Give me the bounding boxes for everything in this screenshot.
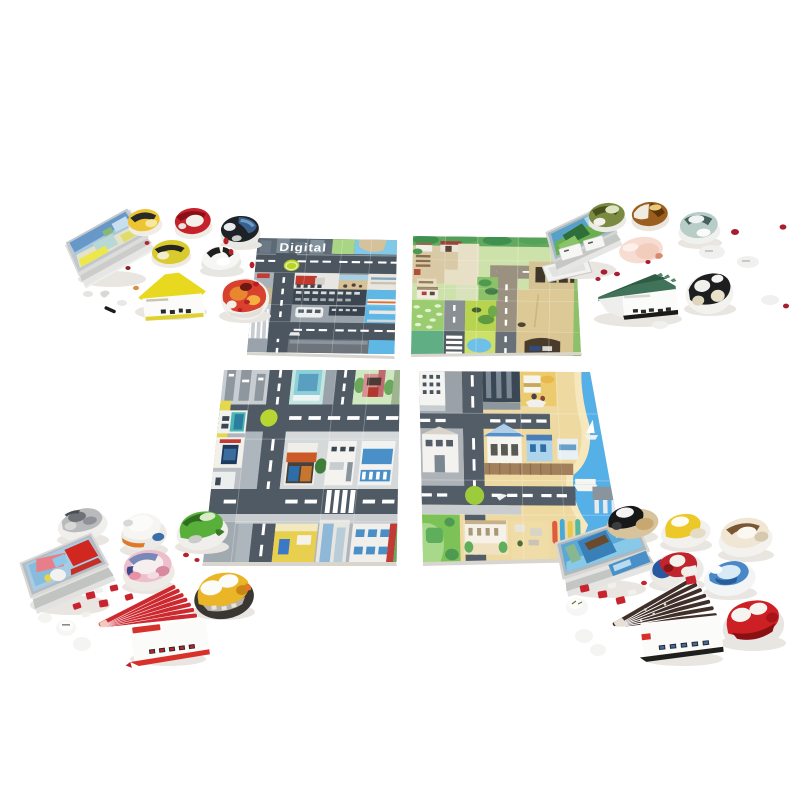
svg-text:Digital: Digital xyxy=(279,241,328,254)
